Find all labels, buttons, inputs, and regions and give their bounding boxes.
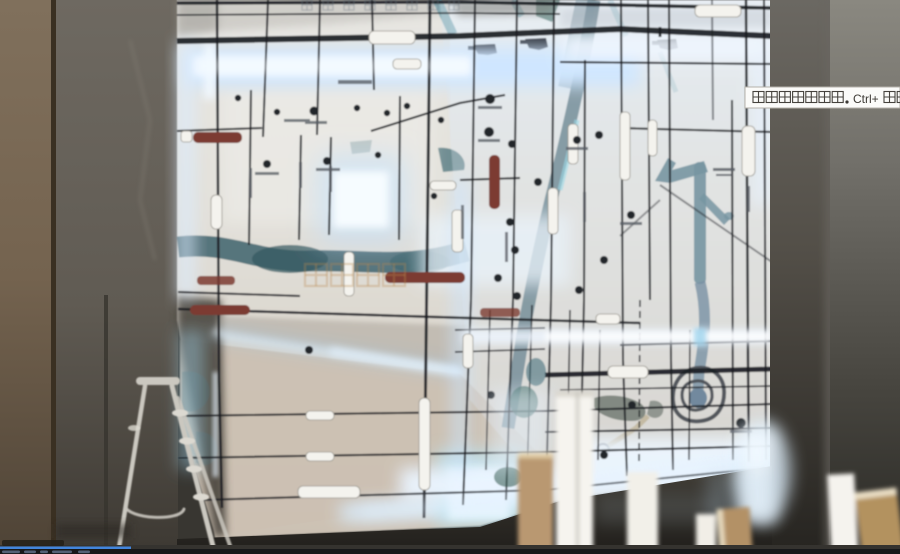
svg-text:Ctrl+: Ctrl+ [853,92,879,106]
